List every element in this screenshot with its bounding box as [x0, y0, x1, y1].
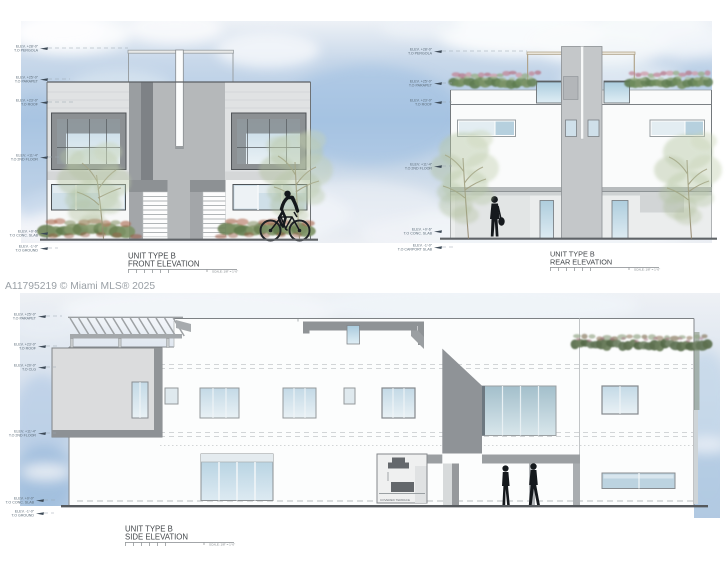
svg-text:T.O ROOF: T.O ROOF — [19, 346, 37, 350]
svg-text:SCALE: 1/8" = 1'-0": SCALE: 1/8" = 1'-0" — [634, 268, 660, 272]
svg-text:T.O 2ND FLOOR: T.O 2ND FLOOR — [11, 157, 39, 161]
svg-text:A11795219 © Miami MLS® 2025: A11795219 © Miami MLS® 2025 — [5, 281, 155, 292]
svg-text:T.O PARAPET: T.O PARAPET — [13, 316, 37, 320]
svg-text:T.O PERGOLA: T.O PERGOLA — [14, 48, 39, 52]
svg-text:T.O 2ND FLOOR: T.O 2ND FLOOR — [405, 166, 433, 170]
svg-text:T.O CONC. SLAB: T.O CONC. SLAB — [10, 233, 39, 237]
svg-text:SIDE ELEVATION: SIDE ELEVATION — [125, 533, 188, 542]
svg-text:T.O CONC. SLAB: T.O CONC. SLAB — [404, 231, 433, 235]
svg-text:FRONT ELEVATION: FRONT ELEVATION — [128, 260, 199, 269]
svg-text:T.O ROOF: T.O ROOF — [21, 102, 39, 106]
svg-text:T.O PARAPET: T.O PARAPET — [409, 83, 433, 87]
svg-text:T.O 2ND FLOOR: T.O 2ND FLOOR — [9, 433, 37, 437]
svg-text:T.O CLG: T.O CLG — [22, 367, 36, 371]
svg-text:T.O GROUND: T.O GROUND — [15, 248, 38, 252]
svg-text:T.O PERGOLA: T.O PERGOLA — [408, 51, 433, 55]
svg-text:REAR ELEVATION: REAR ELEVATION — [550, 258, 612, 267]
svg-text:COVERED TERRACE: COVERED TERRACE — [380, 498, 410, 502]
svg-text:T.O CARPORT SLAB: T.O CARPORT SLAB — [398, 247, 433, 251]
svg-text:T.O GROUND: T.O GROUND — [11, 513, 34, 517]
svg-text:SCALE: 1/8" = 1'-0": SCALE: 1/8" = 1'-0" — [209, 543, 235, 547]
svg-text:T.O PARAPET: T.O PARAPET — [15, 79, 39, 83]
svg-text:T.O ROOF: T.O ROOF — [415, 102, 433, 106]
svg-text:T.O CONC. SLAB: T.O CONC. SLAB — [6, 500, 35, 504]
svg-text:SCALE: 1/8" = 1'-0": SCALE: 1/8" = 1'-0" — [212, 270, 238, 274]
